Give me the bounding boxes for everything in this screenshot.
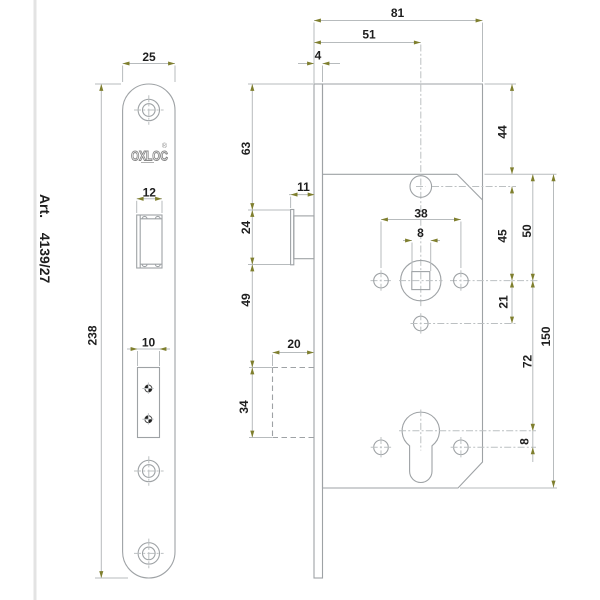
svg-text:4139/27: 4139/27 (37, 233, 53, 284)
svg-text:38: 38 (414, 207, 428, 221)
svg-text:12: 12 (143, 186, 157, 200)
svg-text:150: 150 (539, 326, 553, 346)
svg-text:63: 63 (239, 142, 253, 156)
svg-text:25: 25 (142, 50, 156, 64)
svg-text:51: 51 (362, 28, 376, 42)
svg-text:34: 34 (237, 400, 251, 414)
svg-text:20: 20 (287, 337, 301, 351)
svg-text:11: 11 (297, 180, 310, 194)
svg-text:50: 50 (520, 224, 534, 238)
svg-text:10: 10 (142, 336, 156, 350)
svg-text:8: 8 (417, 226, 424, 240)
svg-text:®: ® (162, 142, 168, 150)
svg-text:4: 4 (315, 49, 322, 63)
svg-text:81: 81 (391, 6, 405, 20)
svg-text:OXLOC: OXLOC (131, 148, 168, 164)
svg-text:Art.: Art. (37, 194, 53, 218)
svg-text:24: 24 (239, 221, 253, 235)
svg-text:238: 238 (86, 325, 100, 345)
svg-text:49: 49 (239, 293, 253, 307)
svg-text:21: 21 (497, 295, 511, 309)
svg-text:45: 45 (496, 229, 510, 243)
svg-text:8: 8 (518, 438, 532, 445)
svg-text:44: 44 (496, 125, 510, 139)
